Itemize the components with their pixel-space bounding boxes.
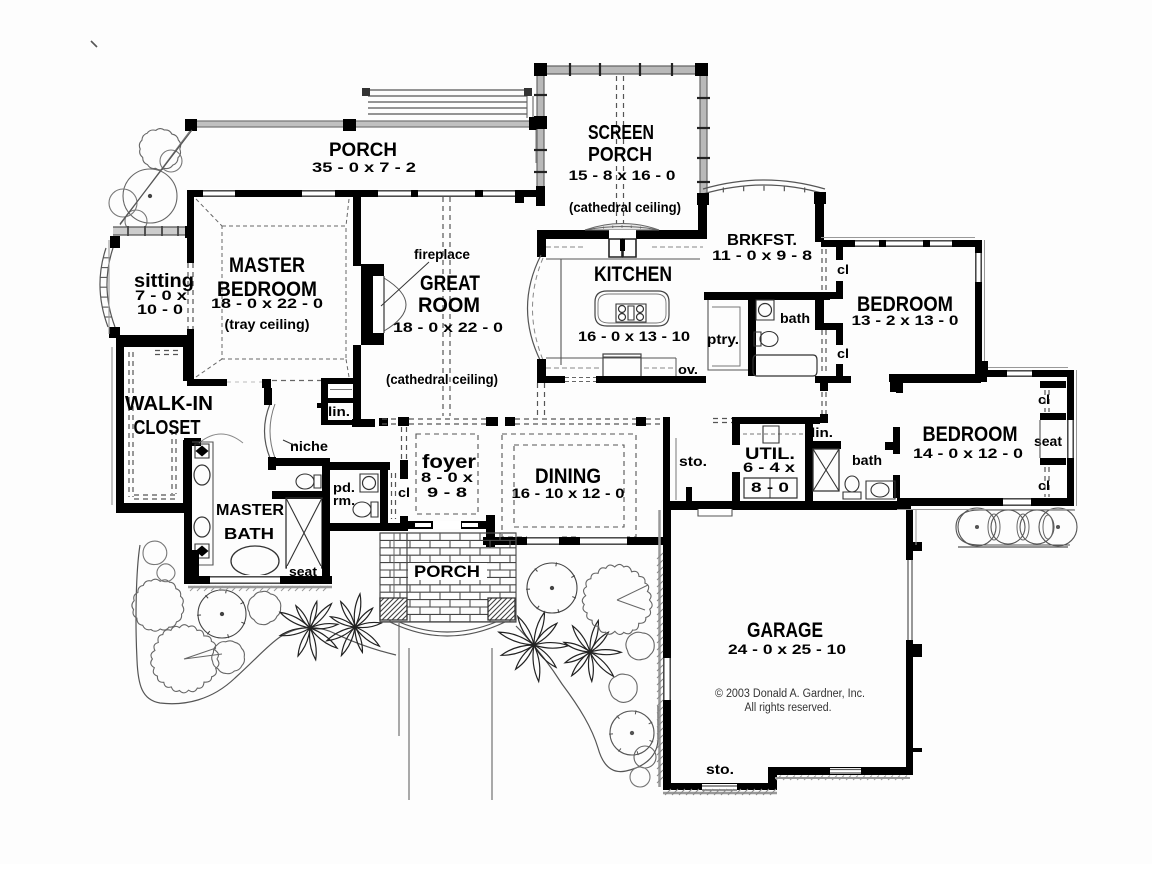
svg-text:18 - 0 x 22 - 0: 18 - 0 x 22 - 0: [393, 320, 503, 335]
svg-text:MASTER: MASTER: [229, 254, 305, 277]
svg-text:35 - 0 x 7 - 2: 35 - 0 x 7 - 2: [312, 160, 416, 175]
svg-text:sto.: sto.: [706, 762, 734, 777]
svg-text:16 - 0 x 13 - 10: 16 - 0 x 13 - 10: [578, 329, 690, 344]
svg-text:8 - 0: 8 - 0: [751, 480, 789, 495]
svg-text:15 - 8 x 16 - 0: 15 - 8 x 16 - 0: [569, 168, 676, 183]
svg-text:BRKFST.: BRKFST.: [727, 232, 797, 249]
svg-text:lin.: lin.: [811, 425, 833, 440]
svg-text:(cathedral ceiling): (cathedral ceiling): [569, 200, 681, 215]
svg-text:GARAGE: GARAGE: [747, 619, 823, 642]
svg-text:rm.: rm.: [333, 493, 355, 508]
svg-text:CLOSET: CLOSET: [134, 417, 201, 439]
svg-text:lin.: lin.: [328, 404, 350, 419]
svg-text:niche: niche: [290, 439, 329, 454]
svg-text:BEDROOM: BEDROOM: [923, 423, 1018, 446]
svg-text:KITCHEN: KITCHEN: [594, 263, 672, 286]
svg-text:© 2003 Donald A. Gardner, Inc.: © 2003 Donald A. Gardner, Inc.: [715, 688, 865, 700]
svg-text:bath: bath: [780, 311, 810, 326]
svg-text:BATH: BATH: [224, 526, 274, 543]
svg-text:PORCH: PORCH: [329, 140, 397, 161]
svg-text:DINING: DINING: [535, 465, 601, 488]
svg-text:(tray ceiling): (tray ceiling): [225, 317, 310, 332]
svg-text:8 - 0 x: 8 - 0 x: [421, 470, 474, 485]
svg-text:14 - 0 x 12 - 0: 14 - 0 x 12 - 0: [913, 446, 1023, 461]
svg-text:PORCH: PORCH: [414, 563, 480, 581]
svg-text:ptry.: ptry.: [707, 332, 739, 347]
svg-text:cl: cl: [1038, 392, 1050, 407]
svg-text:9 - 8: 9 - 8: [427, 485, 468, 500]
svg-text:PORCH: PORCH: [588, 144, 652, 166]
svg-text:(cathedral ceiling): (cathedral ceiling): [386, 372, 498, 387]
svg-text:10 - 0: 10 - 0: [137, 302, 183, 317]
svg-text:bath: bath: [852, 453, 882, 468]
svg-text:WALK-IN: WALK-IN: [125, 393, 213, 415]
svg-text:SCREEN: SCREEN: [588, 122, 654, 144]
svg-text:cl: cl: [837, 346, 849, 361]
svg-text:11 - 0 x 9 - 8: 11 - 0 x 9 - 8: [712, 248, 813, 263]
svg-text:6 - 4 x: 6 - 4 x: [743, 460, 796, 475]
svg-text:18 - 0 x 22 - 0: 18 - 0 x 22 - 0: [211, 296, 323, 311]
svg-text:cl: cl: [398, 485, 410, 500]
svg-text:13 - 2 x 13 - 0: 13 - 2 x 13 - 0: [852, 313, 959, 328]
svg-text:ROOM: ROOM: [418, 294, 480, 317]
svg-text:cl: cl: [1038, 478, 1050, 493]
svg-text:24 - 0 x 25 - 10: 24 - 0 x 25 - 10: [728, 642, 846, 657]
svg-text:fireplace: fireplace: [414, 247, 470, 262]
svg-text:MASTER: MASTER: [216, 502, 284, 519]
svg-text:ov.: ov.: [678, 362, 698, 377]
svg-text:seat: seat: [1034, 434, 1063, 449]
svg-text:7 - 0 x: 7 - 0 x: [135, 288, 188, 303]
svg-text:cl: cl: [837, 262, 849, 277]
svg-text:GREAT: GREAT: [420, 272, 480, 295]
svg-text:16 - 10 x 12 - 0: 16 - 10 x 12 - 0: [512, 486, 625, 501]
svg-text:All rights reserved.: All rights reserved.: [745, 702, 832, 714]
svg-text:sto.: sto.: [679, 454, 707, 469]
